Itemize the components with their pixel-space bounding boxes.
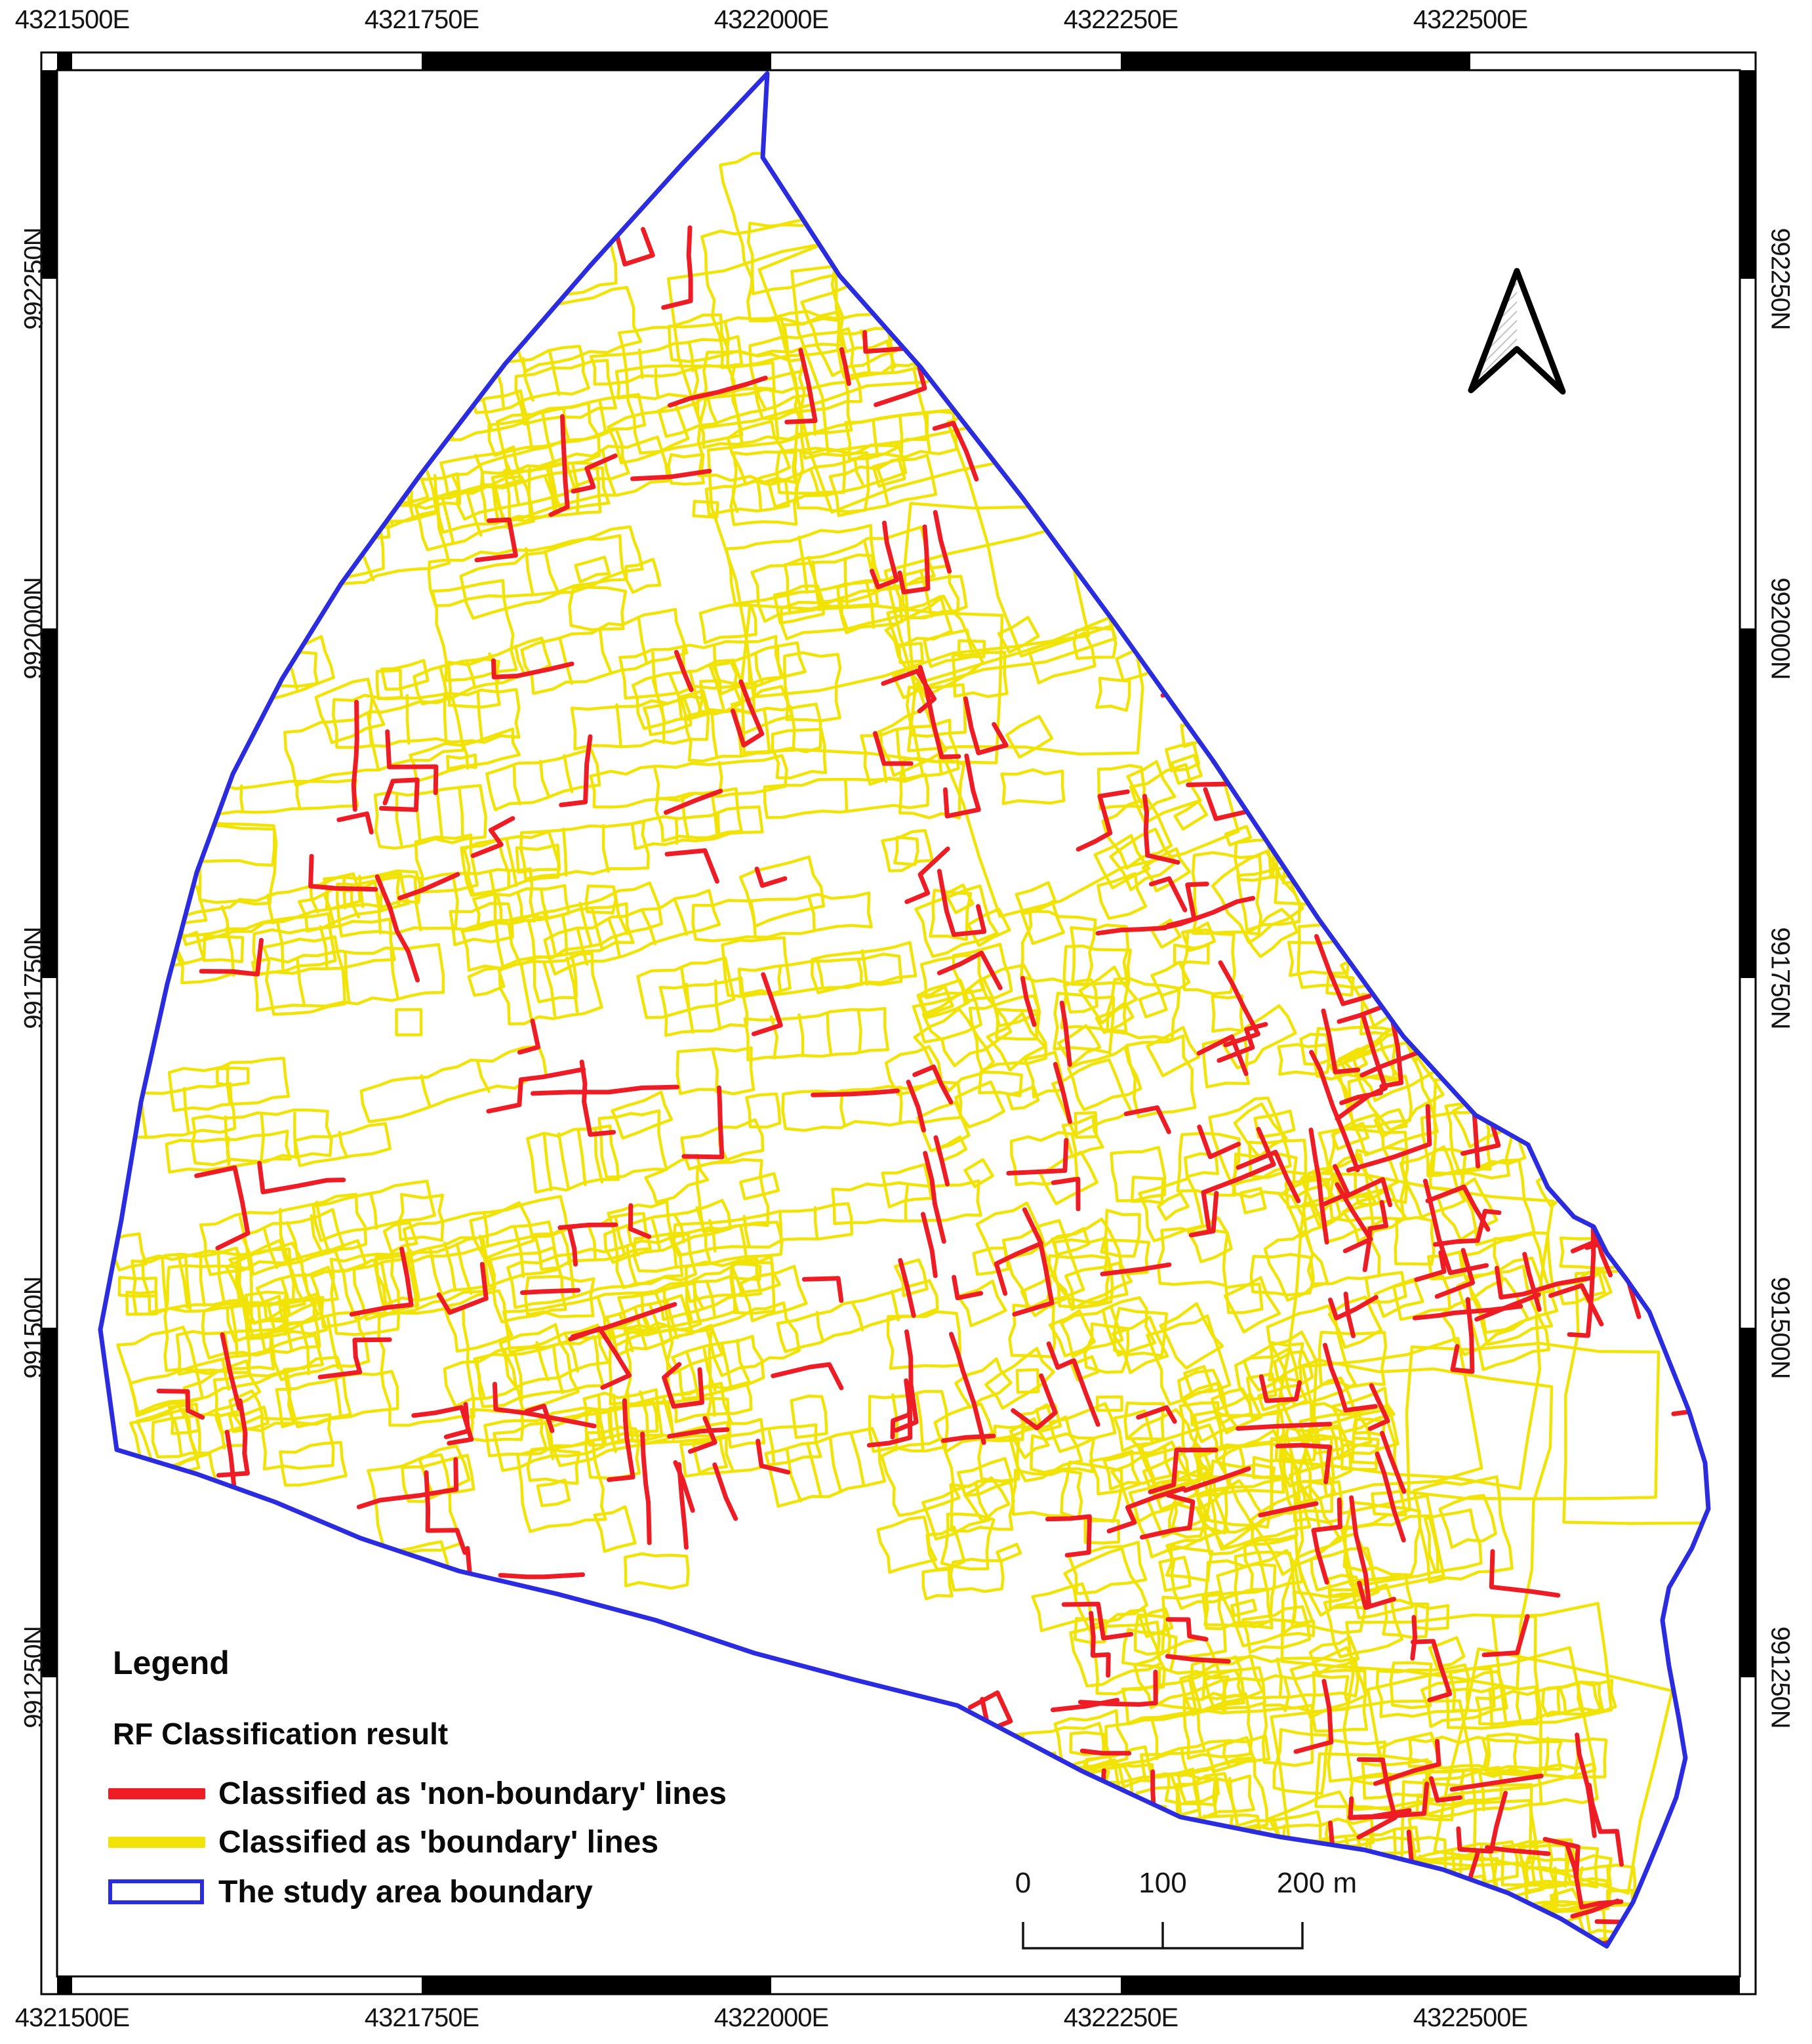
scale-bar-zero-label: 0 xyxy=(1015,1867,1031,1900)
grid-label-top: 4322000E xyxy=(714,5,828,35)
grid-label-bottom: 4322000E xyxy=(714,2003,828,2033)
grid-label-bottom: 4322250E xyxy=(1064,2003,1178,2033)
grid-label-top: 4322250E xyxy=(1064,5,1178,35)
grid-label-bottom: 4321500E xyxy=(15,2003,129,2033)
grid-label-top: 4321750E xyxy=(365,5,479,35)
grid-label-bottom: 4322500E xyxy=(1413,2003,1527,2033)
grid-label-right: 992250N xyxy=(1765,228,1795,329)
grid-label-right: 991750N xyxy=(1765,927,1795,1029)
grid-label-left: 991500N xyxy=(20,1277,49,1378)
grid-label-left: 991750N xyxy=(20,927,49,1029)
map-figure: { "map": { "width": 2763, "height": 3116… xyxy=(0,0,1812,2044)
grid-label-left: 992000N xyxy=(20,577,49,679)
scale-bar-mid-label: 100 xyxy=(1138,1867,1186,1900)
grid-label-right: 992000N xyxy=(1765,577,1795,679)
grid-label-bottom: 4321750E xyxy=(365,2003,479,2033)
grid-label-right: 991250N xyxy=(1765,1626,1795,1728)
scale-bar-max-label: 200 m xyxy=(1277,1867,1357,1900)
map-canvas xyxy=(0,0,1812,2044)
grid-label-left: 992250N xyxy=(20,228,49,329)
grid-label-right: 991500N xyxy=(1765,1277,1795,1378)
grid-label-top: 4322500E xyxy=(1413,5,1527,35)
grid-label-left: 991250N xyxy=(20,1626,49,1728)
grid-label-top: 4321500E xyxy=(15,5,129,35)
